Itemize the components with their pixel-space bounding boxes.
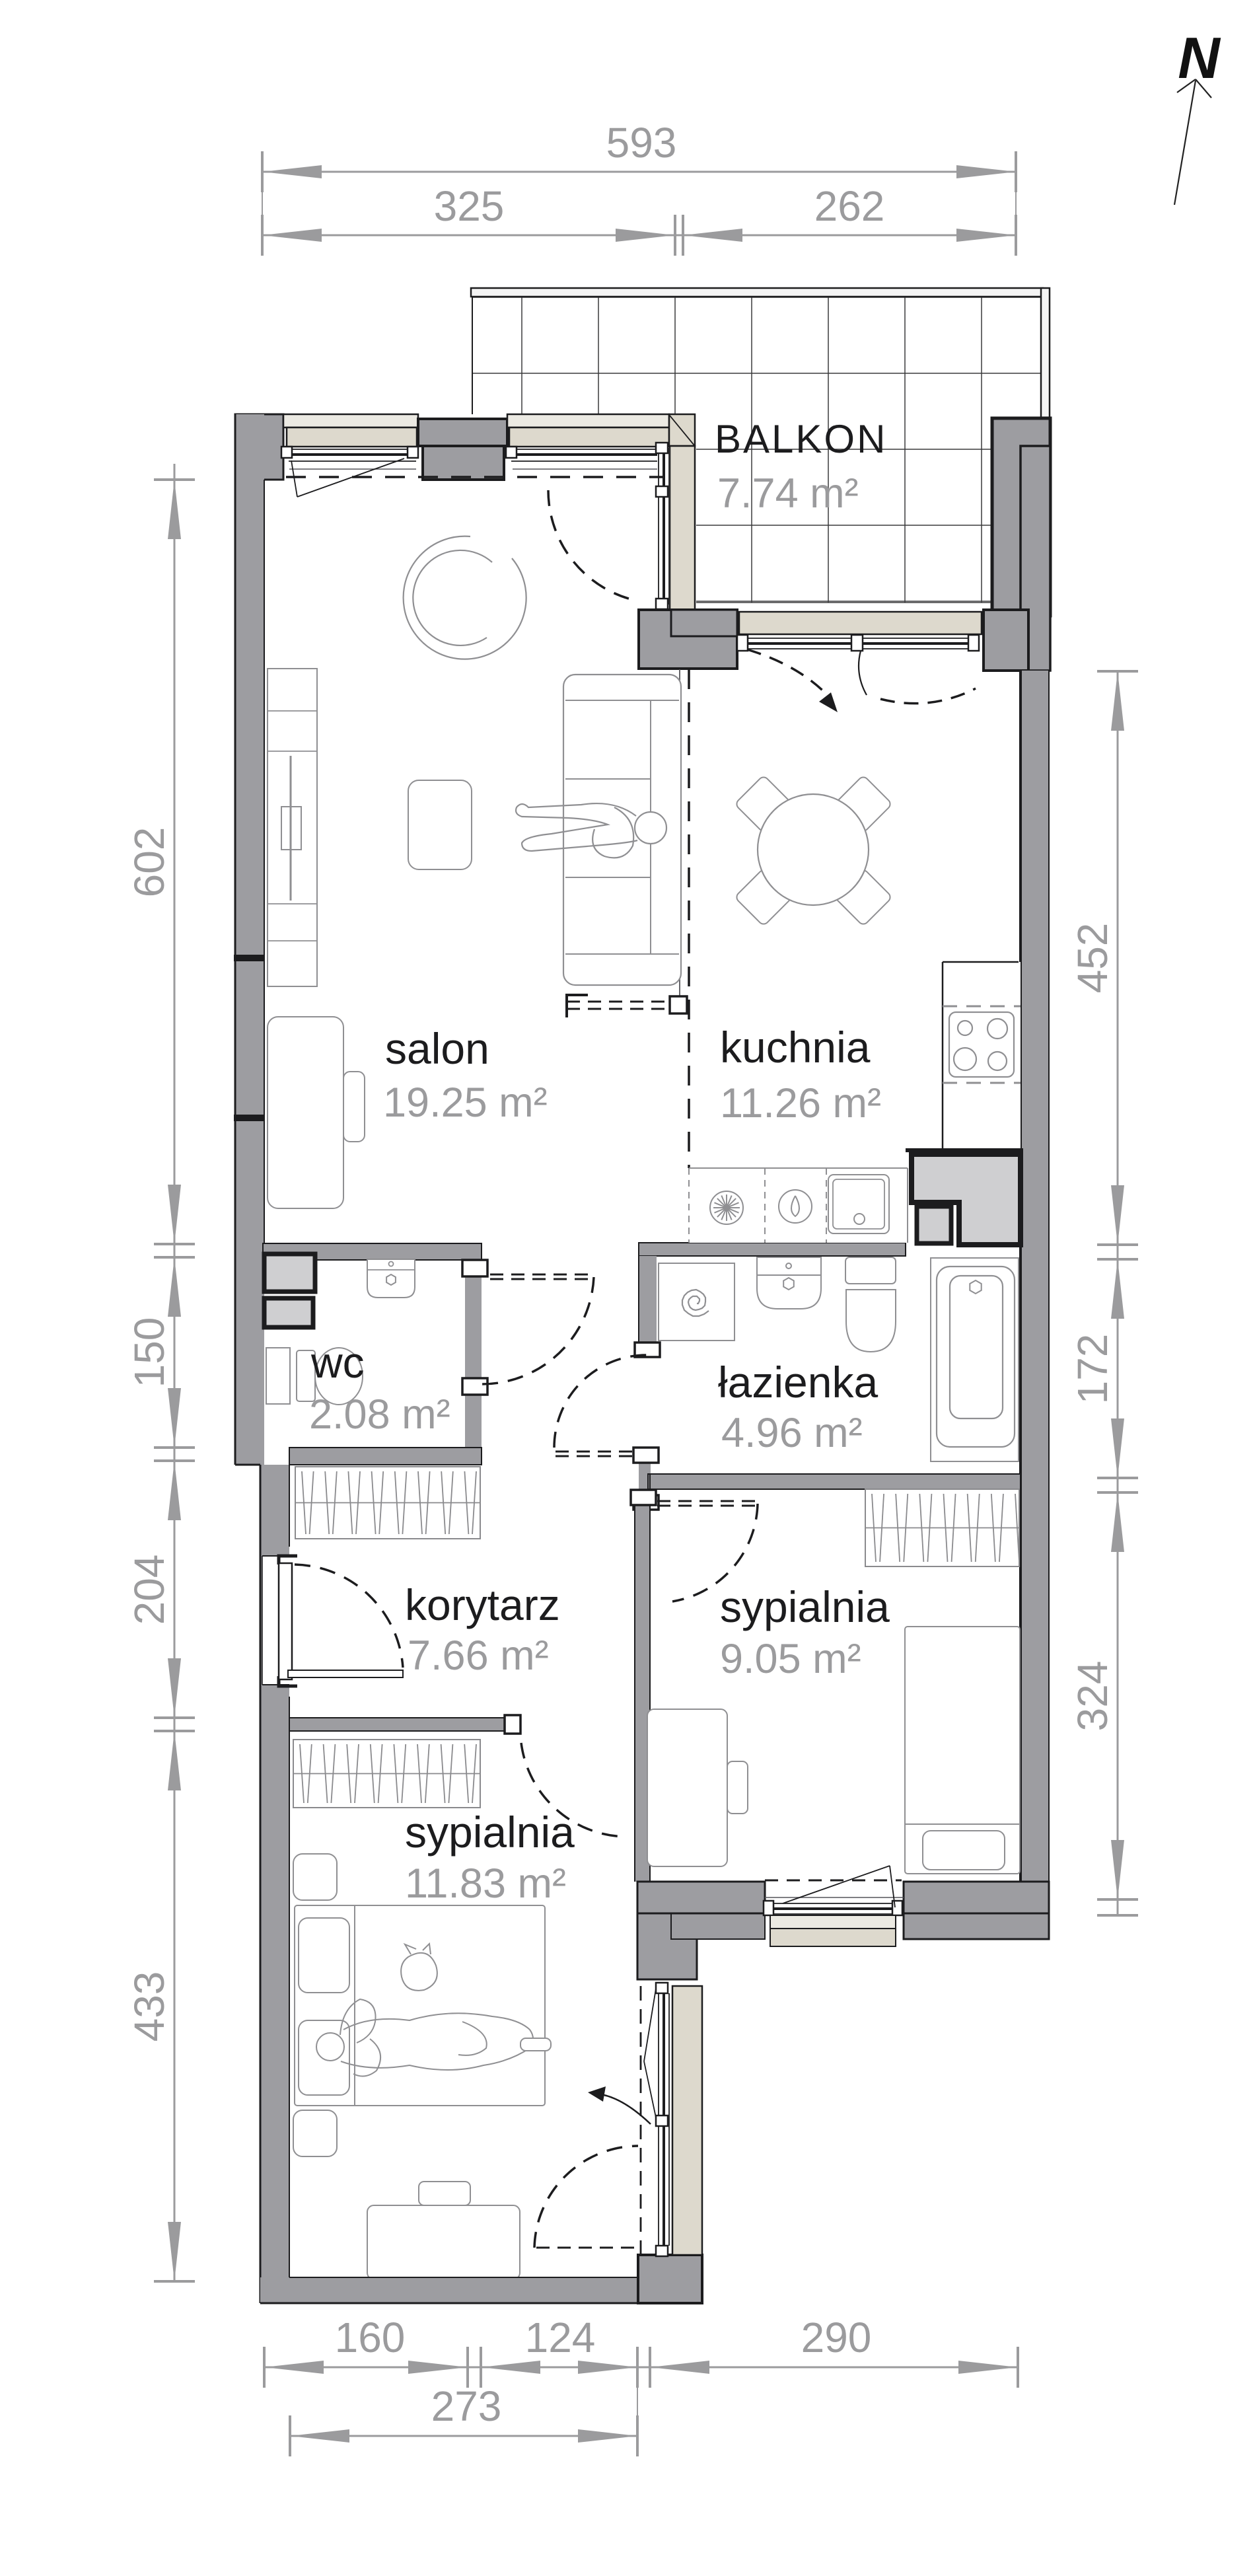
svg-text:602: 602 bbox=[126, 827, 173, 898]
svg-text:N: N bbox=[1178, 25, 1221, 91]
svg-text:7.66 m²: 7.66 m² bbox=[408, 1633, 549, 1679]
svg-text:2.08 m²: 2.08 m² bbox=[309, 1391, 450, 1438]
svg-text:7.74 m²: 7.74 m² bbox=[717, 470, 859, 517]
svg-text:4.96 m²: 4.96 m² bbox=[721, 1410, 863, 1456]
svg-text:433: 433 bbox=[126, 1971, 173, 2042]
svg-text:BALKON: BALKON bbox=[715, 417, 887, 461]
svg-text:150: 150 bbox=[126, 1317, 173, 1388]
svg-text:11.83 m²: 11.83 m² bbox=[405, 1860, 566, 1907]
svg-text:290: 290 bbox=[801, 2314, 872, 2361]
svg-text:124: 124 bbox=[525, 2314, 596, 2361]
svg-text:9.05 m²: 9.05 m² bbox=[720, 1636, 861, 1682]
svg-text:kuchnia: kuchnia bbox=[720, 1023, 871, 1072]
svg-text:160: 160 bbox=[335, 2314, 406, 2361]
svg-text:273: 273 bbox=[431, 2382, 502, 2430]
svg-text:salon: salon bbox=[385, 1024, 489, 1073]
svg-text:204: 204 bbox=[126, 1555, 173, 1625]
svg-text:sypialnia: sypialnia bbox=[720, 1582, 890, 1631]
svg-text:wc: wc bbox=[310, 1338, 365, 1387]
svg-text:172: 172 bbox=[1069, 1334, 1116, 1405]
svg-text:325: 325 bbox=[434, 182, 505, 230]
svg-text:11.26 m²: 11.26 m² bbox=[720, 1080, 881, 1126]
svg-text:324: 324 bbox=[1069, 1661, 1116, 1732]
svg-text:593: 593 bbox=[606, 119, 677, 166]
svg-text:452: 452 bbox=[1069, 923, 1116, 994]
svg-text:262: 262 bbox=[814, 182, 885, 230]
svg-text:korytarz: korytarz bbox=[405, 1580, 560, 1629]
svg-text:łazienka: łazienka bbox=[718, 1358, 878, 1407]
svg-text:sypialnia: sypialnia bbox=[405, 1808, 575, 1857]
svg-text:19.25 m²: 19.25 m² bbox=[383, 1080, 548, 1126]
